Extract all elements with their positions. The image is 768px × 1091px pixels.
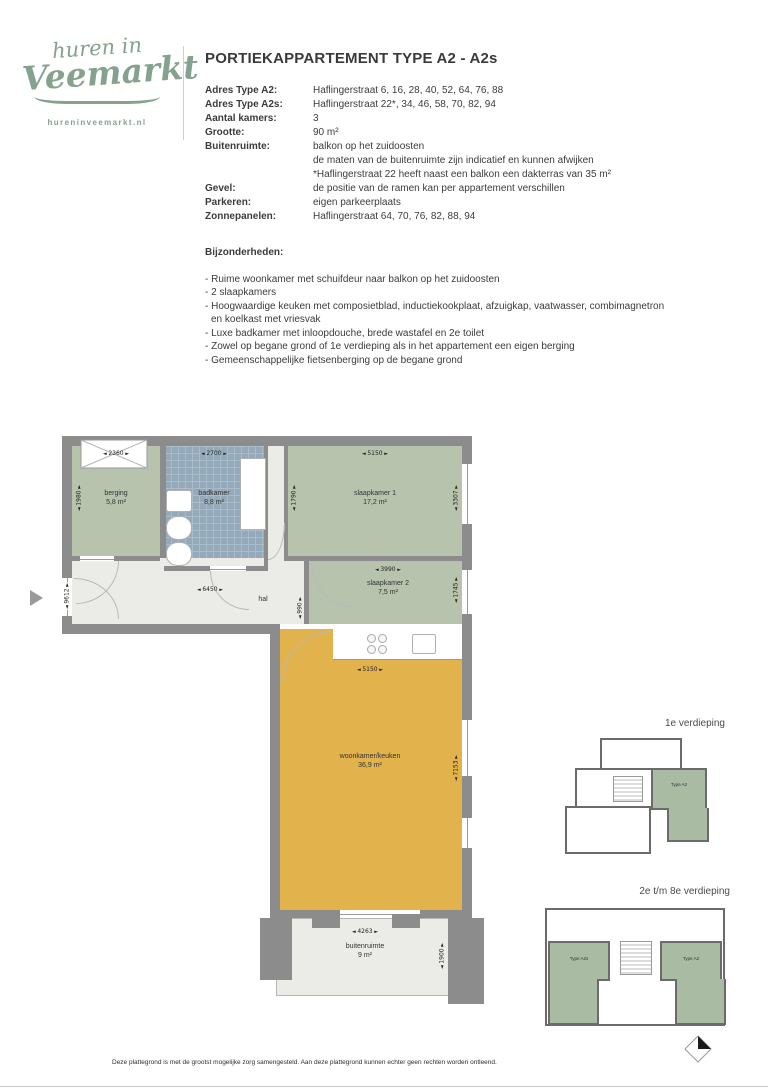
stove-icon (378, 645, 387, 654)
dim-label: 7153 (453, 755, 460, 781)
room-name: woonkamer/keuken (340, 753, 401, 762)
wall (284, 446, 288, 556)
spec-value: balkon op het zuidoosten (313, 140, 675, 154)
dim-label: 1745 (453, 577, 460, 603)
spec-row: Parkeren:eigen parkeerplaats (205, 196, 675, 210)
brochure-page: huren in Veemarkt hureninveemarkt.nl POR… (0, 0, 768, 1091)
shower-icon (240, 458, 266, 530)
features-section: Bijzonderheden: - Ruime woonkamer met sc… (205, 246, 675, 367)
spec-row: Adres Type A2s:Haflingerstraat 22*, 34, … (205, 98, 675, 112)
washbasin-icon (166, 490, 192, 512)
room-area: 5,8 m² (104, 499, 127, 508)
spec-table: Adres Type A2:Haflingerstraat 6, 16, 28,… (205, 84, 675, 224)
page-title-bold: TYPE A2 - A2s (393, 50, 498, 67)
floorplan: berging 5,8 m² badkamer 8,8 m² slaapkame… (60, 428, 518, 1013)
feature-item: - 2 slaapkamers (205, 286, 675, 300)
sink-icon (412, 634, 436, 654)
mini-wing (565, 806, 651, 854)
dim-label: 1900 (439, 943, 446, 969)
mini-unit-type-a2 (660, 941, 722, 981)
window (462, 818, 472, 848)
stove-icon (378, 634, 387, 643)
spec-row: Buitenruimte:balkon op het zuidoosten (205, 140, 675, 154)
mini-floorplan-upper-floors: 2e t/m 8e verdieping Type A2s Type A2 (540, 886, 730, 1046)
spec-row: *Haflingerstraat 22 heeft naast een balk… (205, 168, 675, 182)
room-area: 9 m² (346, 952, 385, 961)
spec-label (205, 154, 313, 168)
spec-label: Aantal kamers: (205, 112, 313, 126)
spec-row: Aantal kamers:3 (205, 112, 675, 126)
mini-unit-label: Type A2 (683, 956, 699, 961)
spec-label: Buitenruimte: (205, 140, 313, 154)
spec-label: Zonnepanelen: (205, 210, 313, 224)
spec-row: Adres Type A2:Haflingerstraat 6, 16, 28,… (205, 84, 675, 98)
mini-stair-core (613, 776, 643, 802)
features-heading: Bijzonderheden: (205, 246, 675, 260)
spec-label: Adres Type A2s: (205, 98, 313, 112)
balcony-pillar (312, 914, 340, 928)
logo-url-link[interactable]: hureninveemarkt.nl (22, 118, 172, 127)
room-label-woonkamer: woonkamer/keuken 36,9 m² (340, 753, 401, 770)
window (462, 464, 472, 524)
spec-row: Zonnepanelen:Haflingerstraat 64, 70, 76,… (205, 210, 675, 224)
room-label-slaapkamer-2: slaapkamer 2 7,5 m² (367, 580, 409, 597)
dim-label: 6450 (197, 586, 223, 593)
spec-label: Gevel: (205, 182, 313, 196)
window (462, 570, 472, 614)
room-label-slaapkamer-1: slaapkamer 1 17,2 m² (354, 490, 396, 507)
window (462, 720, 472, 776)
wall (62, 436, 72, 578)
spec-row: Gevel:de positie van de ramen kan per ap… (205, 182, 675, 196)
mini-unit-type-a2 (675, 979, 726, 1025)
spec-value: 90 m² (313, 126, 675, 140)
room-area: 7,5 m² (367, 589, 409, 598)
mini-floorplan-first-floor: 1e verdieping Type A2 (555, 718, 725, 868)
stove-icon (367, 645, 376, 654)
mini-unit-type-a2 (667, 808, 709, 842)
dim-label: 9612 (64, 582, 71, 610)
feature-item: - Zowel op begane grond of 1e verdieping… (205, 340, 675, 354)
dim-label: 2360 (103, 450, 129, 457)
spec-label: Grootte: (205, 126, 313, 140)
spec-value: de positie van de ramen kan per appartem… (313, 182, 675, 196)
spec-value: de maten van de buitenruimte zijn indica… (313, 154, 675, 168)
page-title: PORTIEKAPPARTEMENT TYPE A2 - A2s (205, 50, 498, 67)
spec-value: Haflingerstraat 64, 70, 76, 82, 88, 94 (313, 210, 675, 224)
mini-wing (600, 738, 682, 770)
spec-value: Haflingerstraat 6, 16, 28, 40, 52, 64, 7… (313, 84, 675, 98)
wall (284, 556, 466, 561)
page-bottom-rule (0, 1086, 768, 1087)
stove-icon (367, 634, 376, 643)
room-label-buitenruimte: buitenruimte 9 m² (346, 943, 385, 960)
room-name: buitenruimte (346, 943, 385, 952)
spec-value: 3 (313, 112, 675, 126)
dim-label: 3990 (375, 566, 401, 573)
feature-item: - Luxe badkamer met inloopdouche, brede … (205, 327, 675, 341)
balcony-pillar (392, 914, 420, 928)
mini-floorplan-title: 1e verdieping (665, 718, 725, 729)
spec-label: Parkeren: (205, 196, 313, 210)
mini-unit-type-a2s (548, 941, 610, 981)
mini-unit-type-a2 (651, 768, 707, 810)
room-name: slaapkamer 2 (367, 580, 409, 589)
mini-floorplan-title: 2e t/m 8e verdieping (639, 886, 730, 897)
room-label-berging: berging 5,8 m² (104, 490, 127, 507)
spec-value: *Haflingerstraat 22 heeft naast een balk… (313, 168, 675, 182)
header-divider (183, 46, 184, 140)
wall (62, 624, 280, 634)
kitchen-counter (333, 629, 462, 660)
wall (270, 629, 280, 918)
spec-row: Grootte:90 m² (205, 126, 675, 140)
spec-value: eigen parkeerplaats (313, 196, 675, 210)
wall (420, 910, 472, 918)
disclaimer: Deze plattegrond is met de grootst mogel… (112, 1059, 672, 1066)
room-name: slaapkamer 1 (354, 490, 396, 499)
room-name: berging (104, 490, 127, 499)
north-arrow-icon (683, 1034, 713, 1064)
spec-label: Adres Type A2: (205, 84, 313, 98)
room-name: hal (258, 596, 267, 605)
mini-stair-core (620, 941, 652, 975)
mini-unit-label: Type A2s (570, 956, 589, 961)
mini-unit-type-a2s (548, 979, 599, 1025)
room-area: 17,2 m² (354, 499, 396, 508)
mini-unit-label: Type A2 (671, 782, 687, 787)
feature-item: - Gemeenschappelijke fietsenberging op d… (205, 354, 675, 368)
spec-value: Haflingerstraat 22*, 34, 46, 58, 70, 82,… (313, 98, 675, 112)
room-name: badkamer (198, 490, 229, 499)
toilet-icon (166, 516, 192, 540)
page-title-regular: PORTIEKAPPARTEMENT (205, 50, 388, 67)
wall (304, 561, 309, 624)
dim-label: 5150 (362, 450, 388, 457)
balcony-pillar (448, 918, 484, 1004)
room-area: 36,9 m² (340, 762, 401, 771)
dim-label: 1980 (76, 485, 83, 511)
dim-label: 990 (297, 597, 304, 619)
balcony-pillar (260, 918, 292, 980)
dim-label: 3307 (453, 485, 460, 511)
dim-label: 2700 (201, 450, 227, 457)
room-area: 8,8 m² (198, 499, 229, 508)
entrance-arrow-icon (30, 590, 43, 606)
dim-label: 5150 (357, 666, 383, 673)
feature-item: - Hoogwaardige keuken met composietblad,… (205, 300, 675, 327)
dim-label: 4263 (352, 928, 378, 935)
spec-label (205, 168, 313, 182)
toilet-icon (166, 542, 192, 566)
logo: huren in Veemarkt hureninveemarkt.nl (22, 36, 172, 127)
room-label-badkamer: badkamer 8,8 m² (198, 490, 229, 507)
room-label-hal: hal (258, 596, 267, 605)
spec-row: de maten van de buitenruimte zijn indica… (205, 154, 675, 168)
dim-label: 1790 (291, 485, 298, 511)
feature-item: - Ruime woonkamer met schuifdeur naar ba… (205, 273, 675, 287)
